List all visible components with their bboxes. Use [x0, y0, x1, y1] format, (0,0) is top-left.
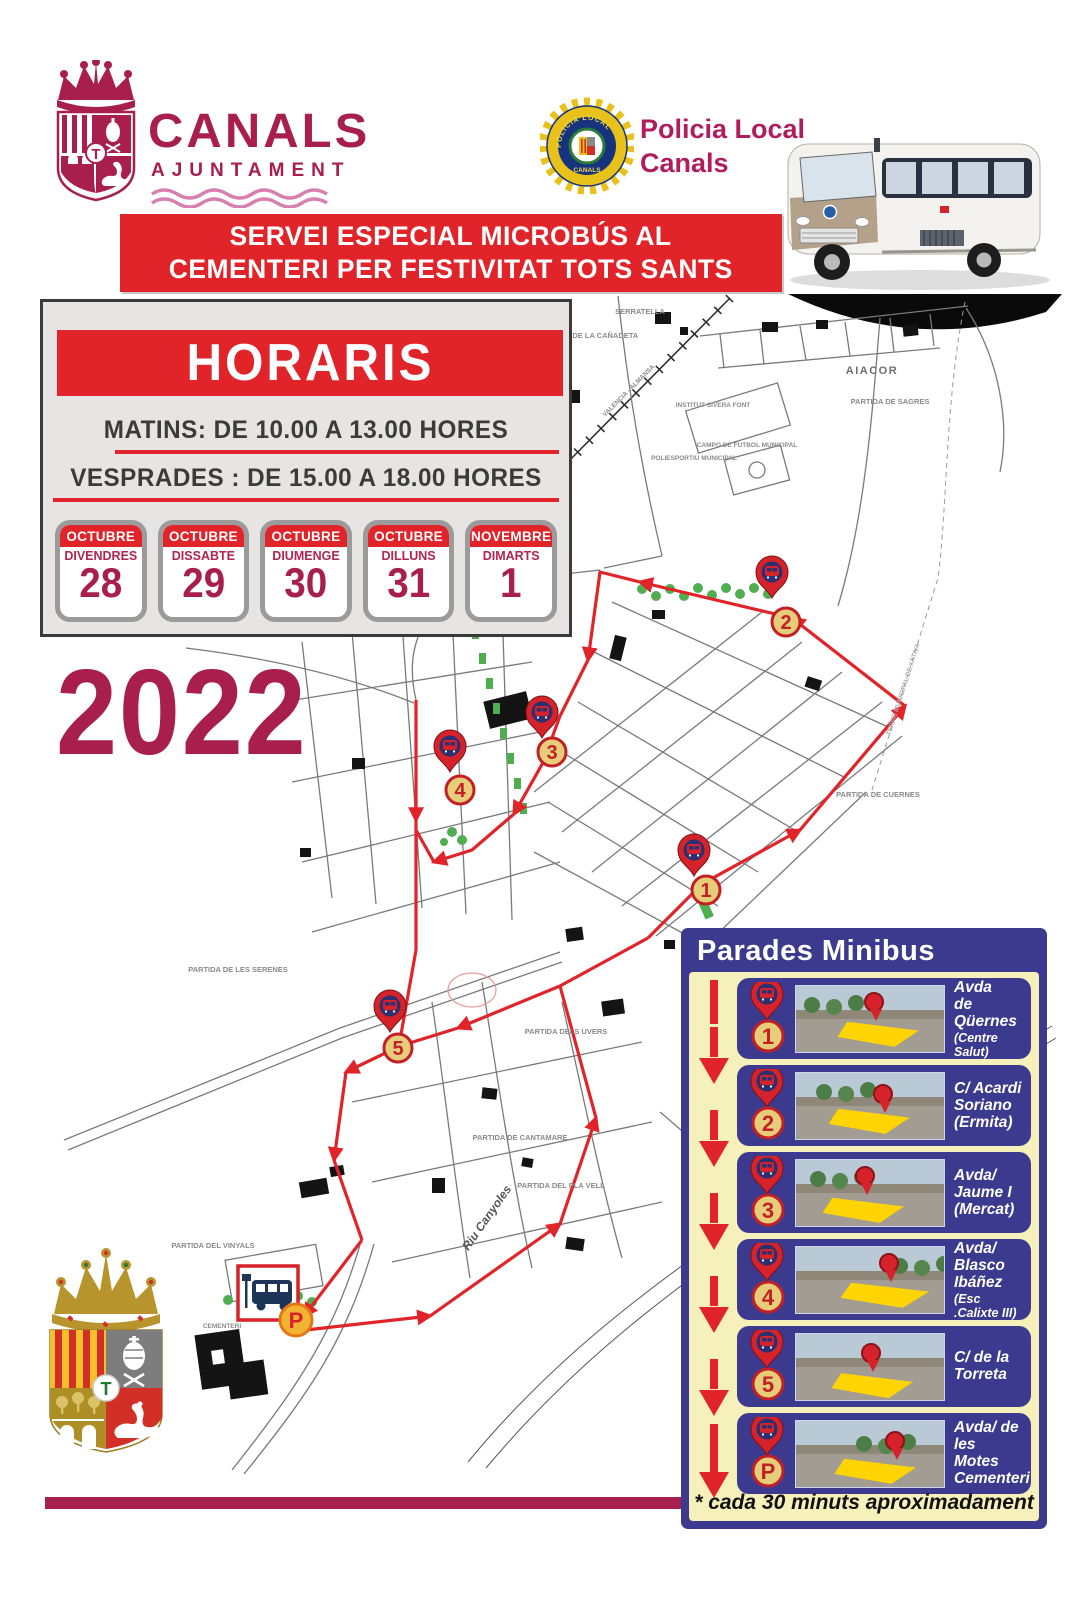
map-label: PARTIDA DEL PLA VELL [517, 1181, 605, 1190]
day-card: OCTUBRE DIUMENGE 30 [260, 520, 352, 622]
street-photo [795, 1159, 945, 1227]
day-month: OCTUBRE [163, 525, 245, 547]
map-label: PARTIDA DELS UVERS [525, 1027, 608, 1036]
stop-detail: (Esc .Calixte III) [954, 1292, 1027, 1320]
stop-row: P Avda/ de les Motes Cementeri [737, 1413, 1031, 1494]
svg-text:2: 2 [762, 1111, 774, 1136]
parades-title: Parades Minibus [681, 928, 1047, 968]
canals-coat-of-arms: T [36, 1246, 176, 1456]
matins-schedule: MATINS: DE 10.00 A 13.00 HORES [51, 416, 561, 445]
down-arrows-icon [691, 972, 737, 1521]
day-month: OCTUBRE [60, 525, 142, 547]
svg-text:1: 1 [700, 880, 711, 902]
map-label: PARTIDA DE LES SERENES [188, 965, 288, 974]
svg-text:4: 4 [762, 1285, 775, 1310]
parades-minibus-panel: Parades Minibus [681, 928, 1047, 1529]
map-label: Riu Canyoles [459, 1182, 514, 1253]
map-label: PARTIDA DE CANTAMARE [473, 1133, 568, 1142]
stop-row: 1 Avda de Qüernes (Centre Salut) [737, 978, 1031, 1059]
svg-text:5: 5 [762, 1372, 774, 1397]
map-label: TERME MUNICIPAL DE XÀTIVA [884, 642, 922, 736]
minibus-image [770, 102, 1066, 302]
stop-name: C/ Acardi Soriano (Ermita) [954, 1080, 1027, 1131]
day-card: OCTUBRE DIVENDRES 28 [55, 520, 147, 622]
street-photo [795, 985, 945, 1053]
svg-text:T: T [101, 1379, 112, 1399]
map-stop-p: P [280, 1304, 312, 1336]
horaris-box: HORARIS MATINS: DE 10.00 A 13.00 HORES V… [40, 299, 572, 637]
street-photo [795, 1420, 945, 1488]
stop-marker-icon: P [741, 1417, 795, 1491]
stop-name: Avda/ de les Motes Cementeri [954, 1419, 1030, 1487]
day-number: 29 [166, 563, 241, 603]
svg-text:3: 3 [546, 742, 557, 764]
year-label: 2022 [56, 642, 307, 782]
map-stop-4: 4 [434, 730, 474, 804]
parades-list: 1 Avda de Qüernes (Centre Salut) 2 C/ Ac… [689, 972, 1039, 1521]
street-photo [795, 1246, 945, 1314]
stop-row: 4 Avda/ Blasco Ibáñez (Esc .Calixte III) [737, 1239, 1031, 1320]
map-label: PARTIDA DE SAGRES [851, 397, 930, 406]
street-photo [795, 1072, 945, 1140]
stop-marker-icon: 5 [741, 1330, 795, 1404]
poster-page: SERRATELLA PARTIDA DE LA CAÑADETA AIACOR… [0, 0, 1080, 1600]
horaris-title-bar: HORARIS [57, 330, 563, 396]
map-label: AIACOR [846, 365, 898, 377]
map-label: CAMPO DE FUTBOL MUNICIPAL [697, 442, 798, 449]
svg-text:1: 1 [762, 1024, 774, 1049]
stop-name: C/ de la Torreta [954, 1349, 1027, 1383]
stop-name: Avda de Qüernes [954, 979, 1027, 1030]
stop-marker-icon: 4 [741, 1243, 795, 1317]
street-photo [795, 1333, 945, 1401]
map-label: INSTITUT SIVERA FONT [676, 402, 751, 409]
stop-detail: (Centre Salut) [954, 1031, 1027, 1059]
red-underline [53, 498, 559, 502]
day-number: 28 [63, 563, 138, 603]
day-card: OCTUBRE DISSABTE 29 [158, 520, 250, 622]
red-underline [115, 450, 559, 454]
stop-row: 5 C/ de la Torreta [737, 1326, 1031, 1407]
day-number: 30 [268, 563, 343, 603]
horaris-title: HORARIS [186, 333, 434, 393]
stop-name: Avda/ Jaume I (Mercat) [954, 1167, 1027, 1218]
map-stop-3: 3 [526, 696, 566, 766]
day-card: NOVEMBRE DIMARTS 1 [465, 520, 557, 622]
wave-decoration-icon [150, 188, 350, 208]
day-card: OCTUBRE DILLUNS 31 [363, 520, 455, 622]
map-label: VALENCIA - ALMANSA [602, 363, 657, 418]
map-stop-2: 2 [756, 556, 800, 636]
policia-local-badge-icon: POLICIA LOCAL CANALS [540, 92, 634, 208]
svg-text:4: 4 [454, 780, 466, 802]
map-label: PARTIDA DE CUERNES [836, 790, 920, 799]
day-month: OCTUBRE [265, 525, 347, 547]
stop-marker-icon: 3 [741, 1156, 795, 1230]
day-number: 31 [371, 563, 446, 603]
stop-name: Avda/ Blasco Ibáñez [954, 1240, 1027, 1291]
svg-text:T: T [91, 146, 100, 163]
canals-crest-icon: T [50, 60, 142, 202]
map-label: SERRATELLA [615, 307, 665, 316]
svg-text:P: P [289, 1308, 304, 1333]
stop-row: 3 Avda/ Jaume I (Mercat) [737, 1152, 1031, 1233]
svg-text:3: 3 [762, 1198, 774, 1223]
svg-text:P: P [761, 1459, 776, 1484]
stop-marker-icon: 2 [741, 1069, 795, 1143]
day-month: OCTUBRE [368, 525, 450, 547]
map-label: POLIESPORTIU MUNICIPAL [651, 455, 737, 462]
frequency-note: * cada 30 minuts aproximadament [689, 1491, 1039, 1515]
map-label: CEMENTERI [203, 1323, 241, 1330]
day-month: NOVEMBRE [470, 525, 552, 547]
map-label: PARTIDA DEL VINYALS [171, 1241, 254, 1250]
svg-text:5: 5 [392, 1038, 403, 1060]
day-number: 1 [474, 563, 549, 603]
svg-text:CANALS: CANALS [573, 167, 601, 174]
calendar-days: OCTUBRE DIVENDRES 28 OCTUBRE DISSABTE 29… [55, 520, 557, 622]
svg-text:2: 2 [780, 612, 791, 634]
stop-row: 2 C/ Acardi Soriano (Ermita) [737, 1065, 1031, 1146]
stop-marker-icon: 1 [741, 982, 795, 1056]
vesprades-schedule: VESPRADES : DE 15.00 A 18.00 HORES [51, 464, 561, 493]
